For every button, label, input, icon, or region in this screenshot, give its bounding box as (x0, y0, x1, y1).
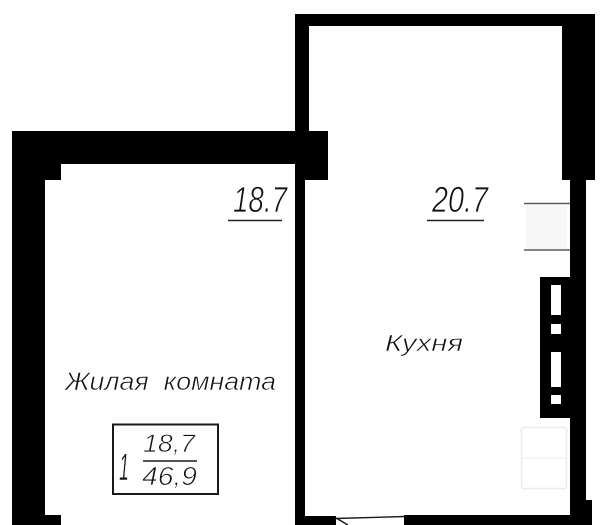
svg-text:Жилая комната: Жилая комната (63, 368, 276, 396)
svg-text:18.7: 18.7 (233, 179, 289, 220)
svg-text:46,9: 46,9 (142, 461, 197, 491)
svg-text:18,7: 18,7 (143, 430, 196, 458)
svg-text:1: 1 (119, 447, 129, 489)
svg-text:20.7: 20.7 (431, 179, 489, 220)
svg-text:Кухня: Кухня (385, 330, 463, 356)
